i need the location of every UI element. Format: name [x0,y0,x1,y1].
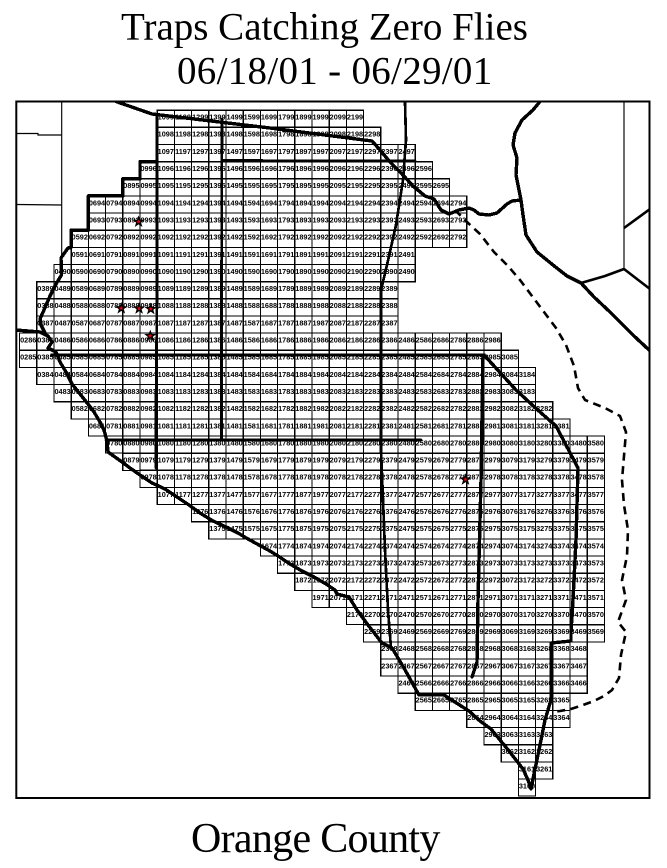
svg-text:1298: 1298 [192,130,208,139]
svg-text:1599: 1599 [244,113,260,122]
svg-text:2776: 2776 [450,507,466,516]
svg-text:3164: 3164 [519,713,536,722]
svg-text:1697: 1697 [261,147,277,156]
svg-text:2286: 2286 [364,336,380,345]
svg-text:1778: 1778 [278,473,294,482]
svg-text:1376: 1376 [209,507,225,516]
svg-text:1083: 1083 [158,387,174,396]
svg-text:3271: 3271 [536,593,552,602]
svg-text:0891: 0891 [123,250,139,259]
svg-text:0883: 0883 [123,387,139,396]
svg-text:1498: 1498 [226,130,242,139]
svg-text:2189: 2189 [347,284,363,293]
svg-text:1686: 1686 [261,336,277,345]
svg-text:1676: 1676 [261,507,277,516]
svg-text:0889: 0889 [123,284,139,293]
svg-text:2471: 2471 [398,593,414,602]
svg-text:3379: 3379 [553,456,569,465]
svg-text:2695: 2695 [433,181,449,190]
svg-text:2174: 2174 [347,541,364,550]
svg-text:2680: 2680 [433,438,449,447]
svg-text:0787: 0787 [106,318,122,327]
svg-text:2773: 2773 [450,559,466,568]
svg-text:1999: 1999 [312,113,328,122]
svg-text:1876: 1876 [295,507,311,516]
svg-text:1492: 1492 [226,233,242,242]
svg-text:2073: 2073 [330,559,346,568]
svg-text:2296: 2296 [364,164,380,173]
svg-text:1283: 1283 [192,387,208,396]
svg-text:1895: 1895 [295,181,311,190]
svg-text:1890: 1890 [295,267,311,276]
svg-text:3369: 3369 [553,627,569,636]
svg-text:2869: 2869 [467,627,483,636]
svg-text:1677: 1677 [261,490,277,499]
svg-text:2470: 2470 [398,610,414,619]
svg-text:1872: 1872 [295,576,311,585]
svg-text:3085: 3085 [502,353,518,362]
svg-text:3273: 3273 [536,559,552,568]
svg-text:2271: 2271 [364,593,380,602]
svg-text:2767: 2767 [450,661,466,670]
svg-text:1683: 1683 [261,387,277,396]
svg-text:1391: 1391 [209,250,225,259]
svg-text:3276: 3276 [536,507,552,516]
svg-text:3368: 3368 [553,644,569,653]
svg-text:1078: 1078 [158,473,174,482]
svg-text:1594: 1594 [244,198,261,207]
svg-text:2565: 2565 [416,696,432,705]
svg-text:0887: 0887 [123,318,139,327]
svg-text:1183: 1183 [175,387,191,396]
svg-text:1493: 1493 [226,216,242,225]
svg-text:2097: 2097 [330,147,346,156]
svg-text:2486: 2486 [398,336,414,345]
svg-text:1687: 1687 [261,318,277,327]
svg-text:0692: 0692 [89,233,105,242]
svg-text:1186: 1186 [175,336,191,345]
svg-text:2484: 2484 [398,370,415,379]
svg-text:3064: 3064 [502,713,519,722]
svg-text:1984: 1984 [312,370,329,379]
svg-text:1875: 1875 [295,524,311,533]
svg-text:1793: 1793 [278,216,294,225]
svg-text:2481: 2481 [398,421,414,430]
svg-text:2574: 2574 [416,541,433,550]
svg-text:2367: 2367 [381,661,397,670]
svg-text:1974: 1974 [312,541,329,550]
svg-text:2866: 2866 [467,679,483,688]
svg-text:1888: 1888 [295,301,311,310]
svg-text:3169: 3169 [519,627,535,636]
svg-text:3174: 3174 [519,541,536,550]
svg-text:2572: 2572 [416,576,432,585]
svg-text:1188: 1188 [175,301,191,310]
svg-text:0791: 0791 [106,250,122,259]
svg-text:1684: 1684 [261,370,278,379]
svg-text:3277: 3277 [536,490,552,499]
svg-text:1091: 1091 [158,250,174,259]
svg-text:0592: 0592 [72,233,88,242]
svg-text:1596: 1596 [244,164,260,173]
svg-text:3576: 3576 [588,507,604,516]
svg-text:1583: 1583 [244,387,260,396]
svg-text:3475: 3475 [570,524,586,533]
svg-text:2674: 2674 [433,541,450,550]
svg-text:2475: 2475 [398,524,414,533]
svg-text:2980: 2980 [484,438,500,447]
svg-text:1989: 1989 [312,284,328,293]
svg-text:0886: 0886 [123,336,139,345]
svg-text:2666: 2666 [433,679,449,688]
svg-text:2974: 2974 [484,541,501,550]
svg-text:1796: 1796 [278,164,294,173]
svg-text:2281: 2281 [364,421,380,430]
svg-text:2287: 2287 [364,318,380,327]
svg-text:1499: 1499 [226,113,242,122]
svg-text:0784: 0784 [106,370,123,379]
svg-text:2472: 2472 [398,576,414,585]
svg-text:2872: 2872 [467,576,483,585]
svg-text:1896: 1896 [295,164,311,173]
svg-text:0782: 0782 [106,404,122,413]
svg-text:2593: 2593 [416,216,432,225]
svg-text:1193: 1193 [175,216,191,225]
svg-text:0586: 0586 [72,336,88,345]
svg-text:2289: 2289 [364,284,380,293]
svg-text:2782: 2782 [450,404,466,413]
svg-text:2981: 2981 [484,421,500,430]
svg-text:2568: 2568 [416,644,432,653]
svg-text:1882: 1882 [295,404,311,413]
svg-text:2078: 2078 [330,473,346,482]
svg-text:1296: 1296 [192,164,208,173]
svg-text:1496: 1496 [226,164,242,173]
svg-text:2575: 2575 [416,524,432,533]
svg-text:3080: 3080 [502,438,518,447]
svg-text:1878: 1878 [295,473,311,482]
svg-text:2493: 2493 [398,216,414,225]
svg-text:3574: 3574 [588,541,605,550]
svg-text:2087: 2087 [330,318,346,327]
svg-text:2669: 2669 [433,627,449,636]
svg-text:3166: 3166 [519,679,535,688]
svg-text:0589: 0589 [72,284,88,293]
svg-text:1387: 1387 [209,318,225,327]
svg-text:2382: 2382 [381,404,397,413]
svg-text:0890: 0890 [123,267,139,276]
svg-text:1081: 1081 [158,421,174,430]
svg-text:2774: 2774 [450,541,467,550]
svg-text:1393: 1393 [209,216,225,225]
svg-text:3375: 3375 [553,524,569,533]
svg-text:1881: 1881 [295,421,311,430]
svg-text:1894: 1894 [295,198,312,207]
svg-text:2295: 2295 [364,181,380,190]
svg-text:2294: 2294 [364,198,381,207]
svg-text:2576: 2576 [416,507,432,516]
svg-text:2092: 2092 [330,233,346,242]
svg-text:3181: 3181 [519,421,535,430]
svg-text:2873: 2873 [467,559,483,568]
svg-text:2966: 2966 [484,679,500,688]
svg-text:2769: 2769 [450,627,466,636]
svg-text:2784: 2784 [450,370,467,379]
svg-text:0483: 0483 [54,387,70,396]
svg-text:2096: 2096 [330,164,346,173]
svg-text:2777: 2777 [450,490,466,499]
svg-text:3170: 3170 [519,610,535,619]
svg-text:0684: 0684 [89,370,106,379]
svg-text:2596: 2596 [416,164,432,173]
svg-text:2478: 2478 [398,473,414,482]
svg-text:2592: 2592 [416,233,432,242]
svg-text:3070: 3070 [502,610,518,619]
svg-text:2686: 2686 [433,336,449,345]
svg-text:3572: 3572 [588,576,604,585]
svg-text:2584: 2584 [416,370,433,379]
svg-text:1695: 1695 [261,181,277,190]
svg-text:1495: 1495 [226,181,242,190]
svg-text:1584: 1584 [244,370,261,379]
svg-text:1775: 1775 [278,524,294,533]
svg-text:0783: 0783 [106,387,122,396]
svg-text:1791: 1791 [278,250,294,259]
svg-text:0882: 0882 [123,404,139,413]
svg-text:3180: 3180 [519,438,535,447]
svg-text:2679: 2679 [433,456,449,465]
svg-text:2573: 2573 [416,559,432,568]
svg-text:1874: 1874 [295,541,312,550]
svg-text:1988: 1988 [312,301,328,310]
svg-text:1197: 1197 [175,147,191,156]
svg-text:1781: 1781 [278,421,294,430]
svg-text:0588: 0588 [72,301,88,310]
svg-text:0693: 0693 [89,216,105,225]
svg-text:2693: 2693 [433,216,449,225]
svg-text:2075: 2075 [330,524,346,533]
svg-text:1597: 1597 [244,147,260,156]
svg-text:1788: 1788 [278,301,294,310]
svg-text:0790: 0790 [106,267,122,276]
svg-text:1087: 1087 [158,318,174,327]
svg-text:2197: 2197 [347,147,363,156]
svg-text:0582: 0582 [72,404,88,413]
svg-text:2793: 2793 [450,216,466,225]
svg-text:0792: 0792 [106,233,122,242]
svg-text:2973: 2973 [484,559,500,568]
svg-text:2378: 2378 [381,473,397,482]
svg-text:1884: 1884 [295,370,312,379]
svg-text:2194: 2194 [347,198,364,207]
svg-text:3569: 3569 [588,627,604,636]
svg-text:3063: 3063 [502,730,518,739]
svg-text:2692: 2692 [433,233,449,242]
svg-text:0794: 0794 [106,198,123,207]
svg-text:3162: 3162 [519,747,535,756]
svg-text:3069: 3069 [502,627,518,636]
svg-text:1997: 1997 [312,147,328,156]
svg-text:0487: 0487 [54,318,70,327]
svg-text:3570: 3570 [588,610,604,619]
svg-text:2099: 2099 [330,113,346,122]
svg-text:2581: 2581 [416,421,432,430]
svg-text:2474: 2474 [398,541,415,550]
svg-text:3275: 3275 [536,524,552,533]
svg-text:2594: 2594 [416,198,433,207]
svg-text:1987: 1987 [312,318,328,327]
svg-text:Traps Catching Zero Flies: Traps Catching Zero Flies [121,5,528,48]
svg-text:1593: 1593 [244,216,260,225]
svg-text:3274: 3274 [536,541,553,550]
svg-text:1278: 1278 [192,473,208,482]
svg-text:3168: 3168 [519,644,535,653]
svg-text:1590: 1590 [244,267,260,276]
svg-text:1291: 1291 [192,250,208,259]
svg-text:2492: 2492 [398,233,414,242]
svg-text:1995: 1995 [312,181,328,190]
svg-text:0990: 0990 [140,267,156,276]
svg-text:1581: 1581 [244,421,260,430]
svg-text:0987: 0987 [140,318,156,327]
svg-text:2292: 2292 [364,233,380,242]
svg-text:1476: 1476 [226,507,242,516]
svg-text:2681: 2681 [433,421,449,430]
svg-text:3364: 3364 [553,713,570,722]
svg-text:2886: 2886 [467,336,483,345]
svg-text:1789: 1789 [278,284,294,293]
svg-text:1377: 1377 [209,490,225,499]
svg-text:1779: 1779 [278,456,294,465]
svg-text:3367: 3367 [553,661,569,670]
svg-text:3163: 3163 [519,730,535,739]
svg-text:1281: 1281 [192,421,208,430]
svg-text:2182: 2182 [347,404,363,413]
svg-text:1388: 1388 [209,301,225,310]
svg-text:0789: 0789 [106,284,122,293]
svg-text:3467: 3467 [570,661,586,670]
svg-text:2176: 2176 [347,507,363,516]
svg-text:1096: 1096 [158,164,174,173]
svg-text:2968: 2968 [484,644,500,653]
svg-text:3074: 3074 [502,541,519,550]
svg-text:1774: 1774 [278,541,295,550]
svg-text:2983: 2983 [484,387,500,396]
svg-text:0488: 0488 [54,301,70,310]
svg-text:2578: 2578 [416,473,432,482]
svg-text:2582: 2582 [416,404,432,413]
svg-text:1990: 1990 [312,267,328,276]
svg-text:2290: 2290 [364,267,380,276]
svg-text:1182: 1182 [175,404,191,413]
svg-text:1688: 1688 [261,301,277,310]
svg-text:1591: 1591 [244,250,260,259]
svg-text:2977: 2977 [484,490,500,499]
svg-text:1489: 1489 [226,284,242,293]
svg-text:1981: 1981 [312,421,328,430]
svg-text:3578: 3578 [588,473,604,482]
svg-text:1973: 1973 [312,559,328,568]
svg-text:1095: 1095 [158,181,174,190]
svg-text:3371: 3371 [553,593,569,602]
svg-text:3468: 3468 [570,644,586,653]
svg-text:1295: 1295 [192,181,208,190]
svg-text:1392: 1392 [209,233,225,242]
svg-text:3573: 3573 [588,559,604,568]
svg-text:1082: 1082 [158,404,174,413]
svg-text:2473: 2473 [398,559,414,568]
svg-text:1179: 1179 [175,456,191,465]
svg-text:2771: 2771 [450,593,466,602]
svg-text:1783: 1783 [278,387,294,396]
svg-text:3376: 3376 [553,507,569,516]
svg-text:1698: 1698 [261,130,277,139]
svg-text:3082: 3082 [502,404,518,413]
svg-text:2284: 2284 [364,370,381,379]
svg-text:2074: 2074 [330,541,347,550]
svg-text:2794: 2794 [450,198,467,207]
svg-text:2783: 2783 [450,387,466,396]
svg-text:1897: 1897 [295,147,311,156]
svg-text:2181: 2181 [347,421,363,430]
svg-text:2667: 2667 [433,661,449,670]
svg-text:2395: 2395 [381,181,397,190]
svg-text:2371: 2371 [381,593,397,602]
svg-text:2986: 2986 [484,336,500,345]
svg-text:2084: 2084 [330,370,347,379]
svg-text:2082: 2082 [330,404,346,413]
svg-text:3073: 3073 [502,559,518,568]
svg-text:1782: 1782 [278,404,294,413]
svg-text:2865: 2865 [467,696,483,705]
svg-text:1681: 1681 [261,421,277,430]
svg-text:3279: 3279 [536,456,552,465]
svg-text:1487: 1487 [226,318,242,327]
svg-text:3077: 3077 [502,490,518,499]
svg-text:2972: 2972 [484,576,500,585]
svg-text:0691: 0691 [89,250,105,259]
svg-text:0996: 0996 [140,164,156,173]
svg-text:3178: 3178 [519,473,535,482]
svg-text:2273: 2273 [364,559,380,568]
svg-text:3071: 3071 [502,593,518,602]
svg-text:2586: 2586 [416,336,432,345]
svg-text:2490: 2490 [398,267,414,276]
svg-text:3366: 3366 [553,679,569,688]
svg-text:2677: 2677 [433,490,449,499]
svg-text:2673: 2673 [433,559,449,568]
svg-text:3072: 3072 [502,576,518,585]
svg-text:3270: 3270 [536,610,552,619]
svg-text:1481: 1481 [226,421,242,430]
svg-text:3579: 3579 [588,456,604,465]
svg-text:2675: 2675 [433,524,449,533]
svg-text:2491: 2491 [398,250,414,259]
svg-text:1971: 1971 [312,593,328,602]
svg-text:1886: 1886 [295,336,311,345]
svg-text:1889: 1889 [295,284,311,293]
svg-text:3378: 3378 [553,473,569,482]
svg-text:1383: 1383 [209,387,225,396]
svg-text:1478: 1478 [226,473,242,482]
svg-text:2871: 2871 [467,593,483,602]
svg-text:1575: 1575 [244,524,260,533]
svg-text:2270: 2270 [364,610,380,619]
svg-text:1975: 1975 [312,524,328,533]
svg-text:1178: 1178 [175,473,191,482]
svg-text:2583: 2583 [416,387,432,396]
svg-text:0584: 0584 [72,370,89,379]
